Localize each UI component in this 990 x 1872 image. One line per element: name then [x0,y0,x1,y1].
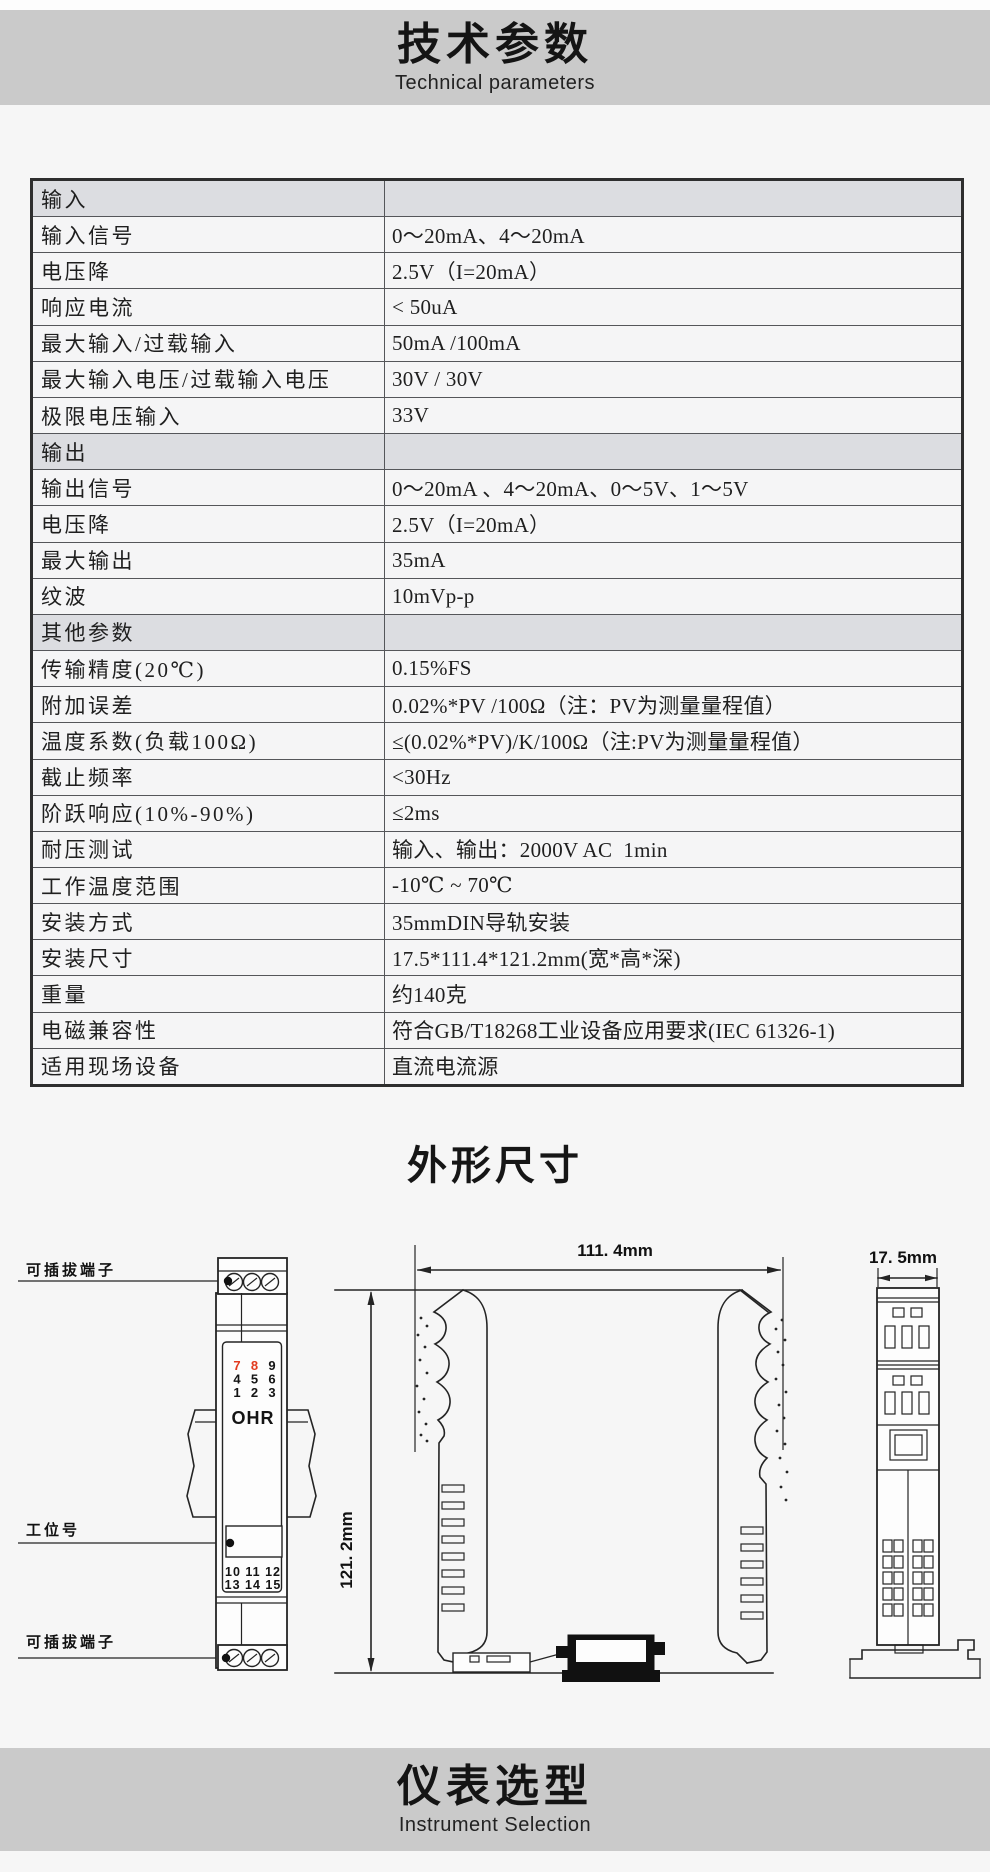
leader-dot-top [224,1277,232,1285]
table-section-row: 输出 [33,433,961,469]
table-row: 输入信号0～20mA、4～20mA [33,216,961,252]
row-label: 最大输入电压/过载输入电压 [33,362,385,397]
dim-depth: 121. 2mm [337,1291,375,1672]
table-row: 最大输入/过载输入50mA /100mA [33,325,961,361]
row-value: 10mVp-p [385,579,961,614]
vent-slots-left [442,1485,464,1611]
row-label: 附加误差 [33,687,385,722]
table-row: 温度系数(负载100Ω)≤(0.02%*PV)/K/100Ω（注:PV为测量量程… [33,722,961,758]
table-section-row: 其他参数 [33,614,961,650]
table-row: 响应电流< 50uA [33,288,961,324]
row-label: 重量 [33,976,385,1011]
top-right-corner [740,1290,768,1312]
front-view-drawing: 7 8 9 4 5 6 1 2 3 OHR 10 11 12 13 14 15 … [0,1230,340,1710]
row-label: 工作温度范围 [33,868,385,903]
table-row: 安装方式35mmDIN导轨安装 [33,903,961,939]
row-value: -10℃ ~ 70℃ [385,868,961,903]
row-value: 0～20mA 、4～20mA、0～5V、1～5V [385,470,961,505]
row-value: < 50uA [385,289,961,324]
table-row: 极限电压输入33V [33,397,961,433]
svg-text:2: 2 [251,1385,258,1400]
row-value: 0.02%*PV /100Ω（注：PV为测量量程值） [385,687,961,722]
terminal-numbers-top: 7 8 9 4 5 6 1 2 3 [233,1358,275,1400]
row-label: 输出 [33,434,385,469]
row-value: 0.15%FS [385,651,961,686]
leader-lines [18,1281,230,1658]
table-row: 电磁兼容性符合GB/T18268工业设备应用要求(IEC 61326-1) [33,1012,961,1048]
table-row: 输出信号0～20mA 、4～20mA、0～5V、1～5V [33,469,961,505]
top-terminal-block [218,1258,287,1294]
table-row: 电压降2.5V（I=20mA） [33,505,961,541]
outline-section-title: 外形尺寸 [0,1133,990,1191]
leader-dot-bottom [222,1654,230,1662]
row-label: 最大输入/过载输入 [33,326,385,361]
row-label: 响应电流 [33,289,385,324]
table-row: 适用现场设备直流电流源 [33,1048,961,1084]
row-value: 直流电流源 [385,1049,961,1084]
row-label: 电压降 [33,253,385,288]
housing-left-leg [434,1290,487,1663]
row-value: 35mA [385,543,961,578]
table-row: 附加误差0.02%*PV /100Ω（注：PV为测量量程值） [33,686,961,722]
row-value: 30V / 30V [385,362,961,397]
row-label: 温度系数(负载100Ω) [33,723,385,758]
tag-window [226,1526,282,1557]
vent-slots-right [741,1527,763,1619]
brand-logo: OHR [232,1408,275,1428]
housing-right-leg [718,1290,771,1663]
row-label: 阶跃响应(10%-90%) [33,796,385,831]
row-value: <30Hz [385,760,961,795]
table-row: 电压降2.5V（I=20mA） [33,252,961,288]
top-strip [0,0,990,10]
row-label: 输入信号 [33,217,385,252]
dim-module-width-label: 17. 5mm [869,1248,937,1267]
table-row: 传输精度(20℃)0.15%FS [33,650,961,686]
row-value: ≤2ms [385,796,961,831]
table-row: 最大输入电压/过载输入电压30V / 30V [33,361,961,397]
dim-width: 111. 4mm [415,1241,783,1452]
table-row: 阶跃响应(10%-90%)≤2ms [33,795,961,831]
table-section-row: 输入 [33,181,961,216]
table-row: 截止频率<30Hz [33,759,961,795]
row-value [385,615,961,650]
label-bottom-terminal: 可插拔端子 [26,1633,116,1651]
terminal-numbers-bottom: 10 11 12 13 14 15 [225,1565,282,1592]
leader-dot-tag [226,1539,234,1547]
header-banner: 技术参数 Technical parameters [0,10,990,105]
table-row: 纹波10mVp-p [33,578,961,614]
svg-text:1: 1 [233,1385,240,1400]
page-title: 技术参数 [397,20,593,71]
row-label: 耐压测试 [33,832,385,867]
row-value: 输入、输出：2000V AC 1min [385,832,961,867]
selection-subtitle: Instrument Selection [399,1814,591,1837]
end-view-drawing: 17. 5mm [800,1230,990,1710]
dim-width-label: 111. 4mm [577,1241,653,1260]
label-tag-number: 工位号 [26,1521,80,1539]
table-row: 耐压测试输入、输出：2000V AC 1min [33,831,961,867]
row-value: 17.5*111.4*121.2mm(宽*高*深) [385,940,961,975]
row-value [385,181,961,216]
dim-module-width: 17. 5mm [869,1248,937,1287]
row-value: 约140克 [385,976,961,1011]
row-label: 安装方式 [33,904,385,939]
row-value: 0～20mA、4～20mA [385,217,961,252]
row-value: 2.5V（I=20mA） [385,506,961,541]
table-row: 重量约140克 [33,975,961,1011]
dim-depth-label: 121. 2mm [337,1511,356,1589]
svg-text:13 14 15: 13 14 15 [225,1578,282,1592]
row-value: 35mmDIN导轨安装 [385,904,961,939]
page-subtitle: Technical parameters [395,72,595,95]
table-row: 安装尺寸17.5*111.4*121.2mm(宽*高*深) [33,939,961,975]
row-value: ≤(0.02%*PV)/K/100Ω（注:PV为测量量程值） [385,723,961,758]
row-label: 电磁兼容性 [33,1013,385,1048]
side-view-drawing: 111. 4mm 121. 2mm [330,1232,800,1710]
perforation-dots [416,1317,789,1502]
row-label: 最大输出 [33,543,385,578]
row-label: 极限电压输入 [33,398,385,433]
table-row: 最大输出35mA [33,542,961,578]
label-top-terminal: 可插拔端子 [26,1261,116,1279]
row-label: 安装尺寸 [33,940,385,975]
selection-banner: 仪表选型 Instrument Selection [0,1748,990,1851]
row-label: 其他参数 [33,615,385,650]
row-value [385,434,961,469]
row-value: 符合GB/T18268工业设备应用要求(IEC 61326-1) [385,1013,961,1048]
row-label: 纹波 [33,579,385,614]
row-label: 适用现场设备 [33,1049,385,1084]
row-label: 输入 [33,181,385,216]
table-row: 工作温度范围-10℃ ~ 70℃ [33,867,961,903]
spec-table: 输入输入信号0～20mA、4～20mA电压降2.5V（I=20mA）响应电流< … [30,178,964,1087]
row-value: 33V [385,398,961,433]
row-value: 2.5V（I=20mA） [385,253,961,288]
svg-text:3: 3 [268,1385,275,1400]
svg-text:10 11 12: 10 11 12 [225,1565,281,1579]
selection-title: 仪表选型 [397,1762,593,1813]
row-label: 传输精度(20℃) [33,651,385,686]
row-label: 电压降 [33,506,385,541]
row-label: 输出信号 [33,470,385,505]
row-label: 截止频率 [33,760,385,795]
row-value: 50mA /100mA [385,326,961,361]
